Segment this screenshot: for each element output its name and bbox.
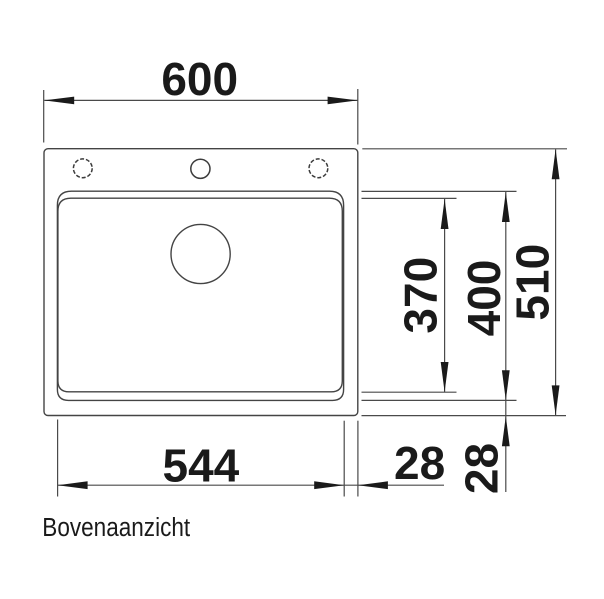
svg-text:400: 400 (458, 260, 510, 337)
svg-text:510: 510 (507, 244, 559, 321)
svg-text:28: 28 (394, 437, 445, 489)
svg-text:370: 370 (395, 257, 447, 334)
svg-text:544: 544 (163, 440, 240, 492)
svg-text:28: 28 (456, 443, 508, 494)
svg-text:Bovenaanzicht: Bovenaanzicht (42, 514, 190, 543)
svg-text:600: 600 (161, 53, 238, 105)
